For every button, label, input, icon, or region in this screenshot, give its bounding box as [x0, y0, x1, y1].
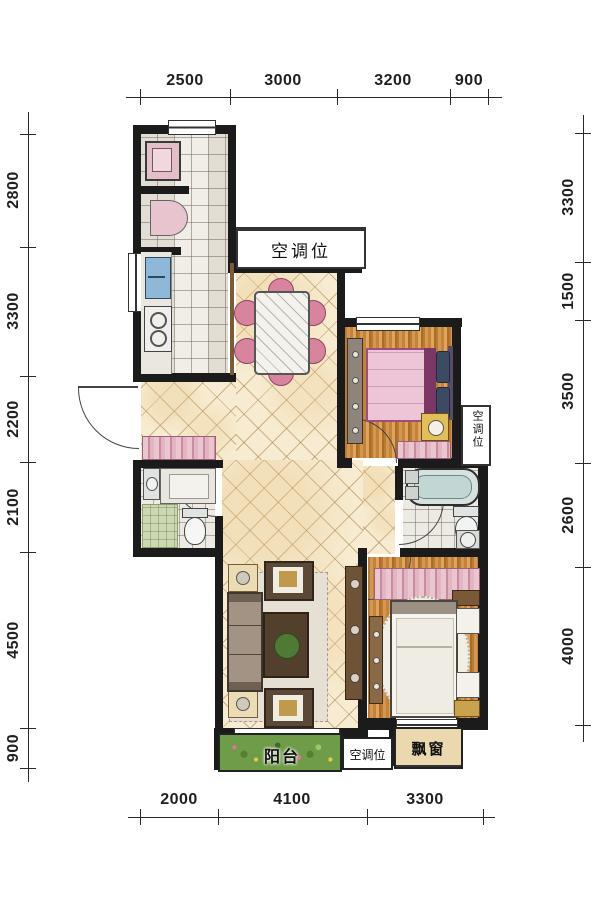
washing-machine-door [152, 148, 172, 172]
toilet [184, 517, 206, 545]
wall [337, 263, 345, 468]
dim-tick [483, 809, 484, 825]
dim-tick [20, 552, 36, 553]
sofa-armrest [229, 682, 261, 690]
bed-blanket [366, 348, 428, 422]
dim-left-5: 4500 [5, 621, 23, 659]
bath-cabinet [405, 470, 419, 484]
bathtub-basin [414, 475, 472, 499]
dim-right-5: 4000 [560, 627, 578, 665]
dim-tick [218, 809, 219, 825]
dim-line-bottom [128, 817, 495, 818]
dim-tick [575, 133, 591, 134]
knob [352, 427, 359, 434]
wall [133, 460, 141, 557]
vanity [456, 530, 480, 549]
stove [144, 306, 172, 352]
dim-tick [575, 725, 591, 726]
dim-tick [450, 89, 451, 105]
wall [228, 125, 236, 265]
side-table [228, 564, 258, 592]
entry-door-arc [78, 388, 139, 449]
dim-left-2: 3300 [5, 292, 23, 330]
dim-tick [140, 809, 141, 825]
table-lamp [236, 697, 250, 711]
decor [350, 579, 360, 589]
wall [133, 125, 141, 255]
knob [352, 351, 359, 358]
bed-blanket [396, 618, 454, 714]
sink [146, 477, 158, 491]
blanket-fold [396, 646, 452, 648]
dim-bottom-1: 2000 [160, 791, 198, 809]
dim-tick [488, 89, 489, 105]
doormat [142, 436, 216, 460]
dim-tick [20, 462, 36, 463]
balcony: 阳台 [218, 733, 342, 772]
dim-tick [575, 463, 591, 464]
burner [150, 312, 167, 329]
dim-tick [20, 247, 36, 248]
wall [133, 373, 236, 382]
coffee-table [263, 612, 309, 678]
dim-tick [575, 262, 591, 263]
dim-left-4: 2100 [5, 488, 23, 526]
ac-platform-right: 空调位 [461, 405, 491, 466]
dim-line-right [583, 115, 584, 742]
dim-left-6: 900 [5, 734, 23, 762]
knob [373, 631, 380, 638]
bed [390, 600, 458, 718]
bay-window-label: 飘窗 [396, 738, 461, 759]
knob [373, 657, 380, 664]
armchair-pillow [279, 571, 297, 587]
dim-bottom-2: 4100 [273, 791, 311, 809]
wall-partition [141, 186, 189, 194]
knob [352, 403, 359, 410]
knob [352, 377, 359, 384]
ac-platform-top-label: 空调位 [238, 237, 364, 262]
dim-tick [367, 809, 368, 825]
sofa-armrest [229, 594, 261, 602]
wall [133, 308, 141, 375]
wall [452, 318, 461, 468]
dim-tick [140, 89, 141, 105]
dim-tick [337, 89, 338, 105]
dim-top-2: 3000 [264, 72, 302, 90]
dim-tick [575, 567, 591, 568]
armchair-pillow [279, 700, 297, 716]
dim-bottom-3: 3300 [406, 791, 444, 809]
window [356, 317, 420, 331]
table-lamp [236, 571, 250, 585]
bed-blanket-fold [424, 348, 436, 418]
kitchen-counter-edge [230, 263, 234, 375]
dim-right-2: 1500 [560, 272, 578, 310]
plant-pot [428, 420, 444, 436]
dim-top-4: 900 [455, 72, 483, 90]
nightstand [456, 672, 480, 698]
window [168, 120, 216, 135]
armchair [264, 688, 314, 728]
tv-cabinet [345, 566, 363, 700]
floor-plan: 2500 3000 3200 900 2000 4100 3300 2800 3… [0, 0, 600, 900]
bed-headboard [392, 602, 456, 614]
decor-chest [454, 700, 480, 717]
balcony-label: 阳台 [264, 743, 300, 767]
dim-line-left [28, 112, 29, 782]
dim-left-3: 2200 [5, 400, 23, 438]
sink [460, 532, 476, 548]
dim-tick [20, 376, 36, 377]
hallway [363, 466, 395, 554]
wall [215, 548, 223, 737]
wall [363, 718, 396, 730]
dining-table [254, 291, 310, 375]
dresser [369, 616, 383, 704]
bedroom-rug [397, 441, 451, 459]
dim-right-3: 3500 [560, 372, 578, 410]
sofa-cushion-line [229, 654, 261, 655]
dim-left-1: 2800 [5, 171, 23, 209]
decor [350, 673, 360, 683]
sofa-cushion-line [229, 625, 261, 626]
dim-top-1: 2500 [166, 72, 204, 90]
sofa [227, 592, 263, 692]
sink-divider [148, 276, 165, 278]
ac-platform-right-label: 空调位 [469, 410, 485, 449]
ac-platform-bottom-label: 空调位 [344, 746, 391, 763]
kitchen-sink [145, 257, 171, 299]
entry-door-leaf [78, 386, 138, 388]
vanity [143, 468, 160, 500]
dim-right-1: 3300 [560, 178, 578, 216]
wall [337, 458, 352, 468]
wall [133, 548, 223, 557]
knob [373, 683, 380, 690]
bay-window: 飘窗 [394, 727, 463, 769]
armchair [264, 561, 314, 601]
wall [400, 548, 488, 557]
dim-tick [230, 89, 231, 105]
washing-machine [145, 141, 181, 181]
plant-stand [421, 413, 449, 441]
dim-tick [20, 728, 36, 729]
shower-mat [142, 504, 178, 548]
dim-tick [20, 768, 36, 769]
nightstand [456, 608, 480, 634]
decor [350, 625, 360, 635]
bath-cabinet [405, 486, 419, 500]
wall [133, 460, 223, 468]
wardrobe [347, 338, 363, 444]
burner [150, 330, 167, 347]
dim-tick [20, 134, 36, 135]
ac-platform-top: 空调位 [236, 227, 366, 269]
dim-tick [575, 320, 591, 321]
dim-top-3: 3200 [374, 72, 412, 90]
bath-counter [160, 468, 216, 504]
wall [395, 466, 403, 500]
pillow [436, 351, 450, 383]
dim-right-4: 2600 [560, 496, 578, 534]
ac-platform-bottom: 空调位 [342, 737, 393, 770]
counter-basin [169, 474, 209, 499]
side-table [228, 690, 258, 718]
utility-basin [150, 200, 188, 236]
potted-plant [274, 633, 300, 659]
dim-line-top [126, 97, 502, 98]
